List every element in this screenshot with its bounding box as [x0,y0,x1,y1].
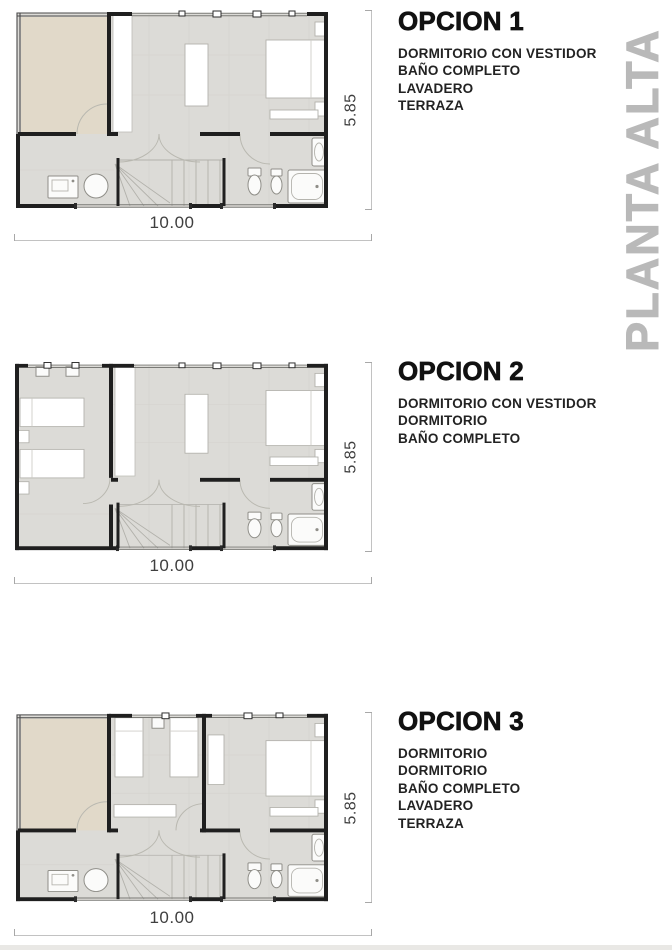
height-dimension-1: 5.85 [344,10,372,210]
room-item: DORMITORIO CON VESTIDOR [398,395,633,412]
room-item: BAÑO COMPLETO [398,430,633,447]
dimension-line [371,362,372,552]
width-dimension-label: 10.00 [14,213,330,233]
option-2-title: OPCION 2 [398,356,633,387]
terrace-area [21,719,107,831]
height-dimension-label: 5.85 [343,93,361,126]
dimension-line [14,928,372,936]
option-2-room-list: DORMITORIO CON VESTIDOR DORMITORIO BAÑO … [398,395,633,447]
option-1-room-list: DORMITORIO CON VESTIDOR BAÑO COMPLETO LA… [398,45,633,115]
stair-void [113,14,132,132]
terrace-area [21,17,107,134]
height-dimension-label: 5.85 [343,791,361,824]
option-1-title: OPCION 1 [398,6,633,37]
floor-plan-option-2 [14,362,330,552]
option-3-title: OPCION 3 [398,706,633,737]
option-3-text: OPCION 3 DORMITORIO DORMITORIO BAÑO COMP… [398,706,633,832]
width-dimension-2: 10.00 [14,556,372,584]
height-dimension-3: 5.85 [344,712,372,903]
room-item: DORMITORIO CON VESTIDOR [398,45,633,62]
floor-plan-option-1 [14,10,330,210]
dimension-line [14,233,372,241]
floor-plan-sheet: 10.00 5.85 OPCION 1 DORMITORIO CON VESTI… [0,0,672,950]
room-item: LAVADERO [398,797,633,814]
width-dimension-label: 10.00 [14,556,330,576]
room-item: TERRAZA [398,815,633,832]
dimension-line [14,576,372,584]
room-item: BAÑO COMPLETO [398,62,633,79]
height-dimension-2: 5.85 [344,362,372,552]
wardrobe-band [115,366,135,476]
dimension-line [371,712,372,903]
width-dimension-label: 10.00 [14,908,330,928]
room-item: TERRAZA [398,97,633,114]
closet-icon [208,735,224,785]
room-item: LAVADERO [398,80,633,97]
room-item: DORMITORIO [398,762,633,779]
room-item: BAÑO COMPLETO [398,780,633,797]
room-item: DORMITORIO [398,412,633,429]
option-1-text: OPCION 1 DORMITORIO CON VESTIDOR BAÑO CO… [398,6,633,115]
option-3-room-list: DORMITORIO DORMITORIO BAÑO COMPLETO LAVA… [398,745,633,832]
option-2-text: OPCION 2 DORMITORIO CON VESTIDOR DORMITO… [398,356,633,447]
floor-plan-option-3 [14,712,330,903]
sheet-title: PLANTA ALTA [617,0,669,380]
width-dimension-3: 10.00 [14,908,372,936]
width-dimension-1: 10.00 [14,213,372,241]
height-dimension-label: 5.85 [343,440,361,473]
room-item: DORMITORIO [398,745,633,762]
page-edge [0,945,672,950]
dimension-line [371,10,372,210]
